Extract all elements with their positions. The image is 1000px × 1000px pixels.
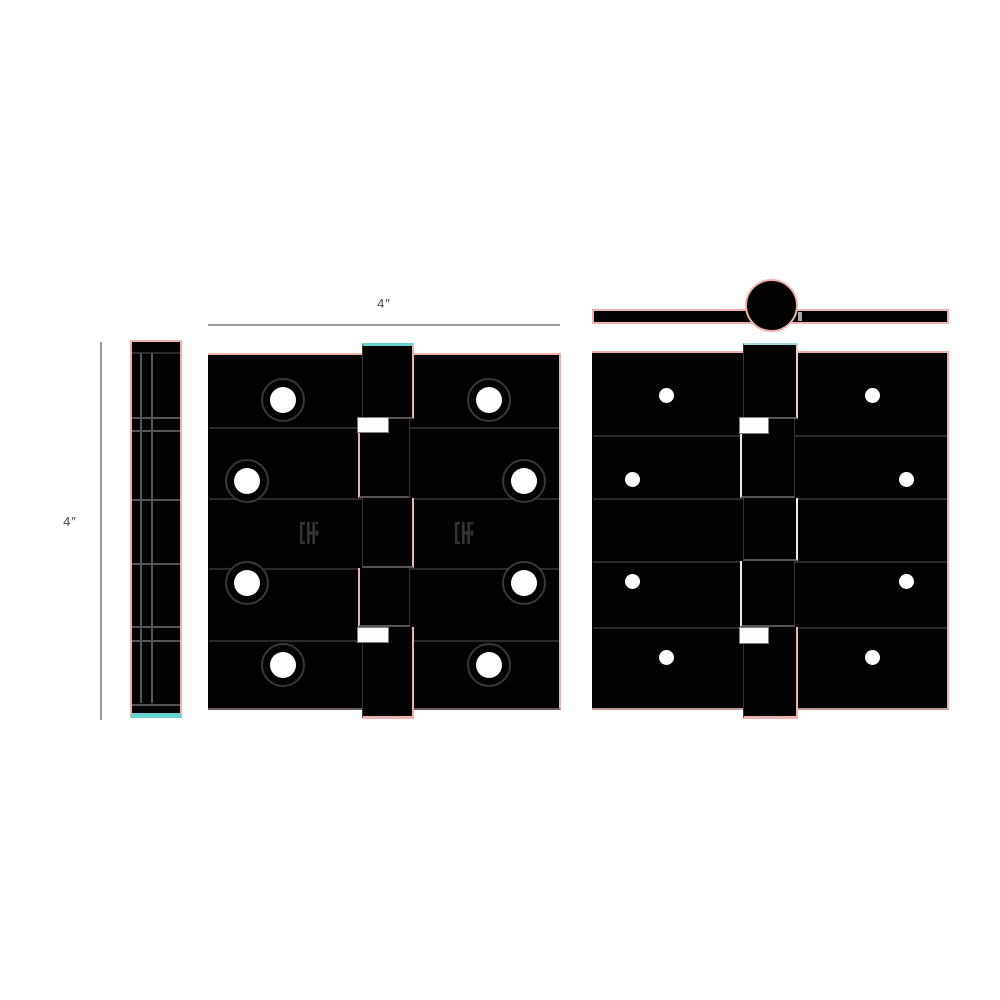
edge-view-line — [132, 704, 180, 706]
screw-hole-bore — [476, 652, 502, 678]
edge-view-line — [132, 563, 180, 565]
edge-view-body — [130, 340, 182, 718]
screw-hole-bore — [511, 570, 537, 596]
screw-hole — [261, 378, 305, 422]
screw-hole-bore — [234, 570, 260, 596]
front-knuckle-notch — [357, 417, 389, 433]
hinge-pin-head — [745, 279, 798, 332]
edge-view-line — [140, 353, 142, 703]
hinge-edge-view — [130, 340, 182, 718]
screw-hole — [659, 388, 674, 403]
edge-view-line — [132, 417, 180, 419]
screw-hole — [899, 574, 914, 589]
front-knuckle-segment — [362, 343, 414, 419]
rear-knuckle-notch — [739, 627, 769, 644]
edge-view-line — [132, 626, 180, 628]
screw-hole-bore — [270, 387, 296, 413]
screw-hole — [225, 459, 269, 503]
screw-hole-bore — [511, 468, 537, 494]
edge-view-line — [132, 499, 180, 501]
screw-hole — [261, 643, 305, 687]
screw-hole-bore — [270, 652, 296, 678]
manufacturer-mark-icon — [299, 518, 319, 548]
screw-hole-bore — [476, 387, 502, 413]
screw-hole — [659, 650, 674, 665]
screw-hole — [865, 388, 880, 403]
screw-hole — [502, 459, 546, 503]
rear-knuckle-notch — [739, 417, 769, 434]
screw-hole — [625, 472, 640, 487]
screw-hole — [865, 650, 880, 665]
screw-hole-bore — [234, 468, 260, 494]
hinge-diagram: 4″ 4″ — [0, 0, 1000, 1000]
front-knuckle-notch — [357, 627, 389, 643]
top-view-slot — [798, 312, 802, 321]
screw-hole — [467, 378, 511, 422]
screw-hole — [899, 472, 914, 487]
screw-hole — [225, 561, 269, 605]
screw-hole — [625, 574, 640, 589]
front-knuckle-segment — [358, 568, 410, 627]
edge-view-line — [132, 640, 180, 642]
rear-knuckle-segment — [743, 343, 798, 419]
manufacturer-mark-icon — [454, 518, 474, 548]
rear-knuckle-segment — [740, 561, 795, 627]
edge-view-line — [151, 353, 153, 703]
front-knuckle-segment — [362, 498, 414, 568]
rear-knuckle-segment — [743, 498, 798, 561]
screw-hole — [502, 561, 546, 605]
screw-hole — [467, 643, 511, 687]
edge-view-line — [132, 430, 180, 432]
